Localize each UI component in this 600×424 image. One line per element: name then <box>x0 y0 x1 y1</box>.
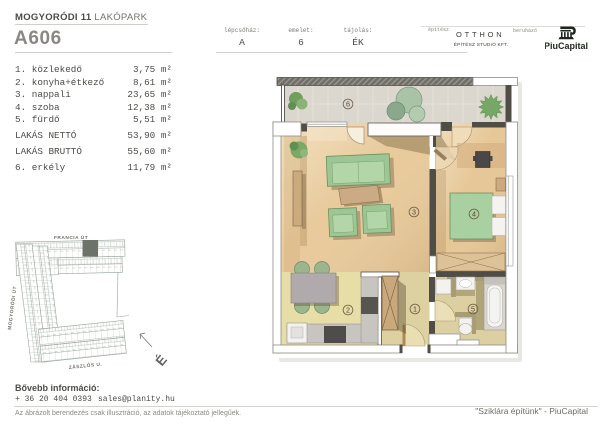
svg-text:4: 4 <box>472 210 476 219</box>
svg-text:1: 1 <box>413 305 417 314</box>
svg-text:3: 3 <box>412 208 416 217</box>
svg-text:FRANCIA ÚT: FRANCIA ÚT <box>54 234 88 241</box>
svg-text:6: 6 <box>346 100 350 109</box>
svg-text:MOGYORÓDI ÚT: MOGYORÓDI ÚT <box>5 285 18 330</box>
svg-text:É: É <box>153 352 170 369</box>
svg-text:5: 5 <box>471 305 475 314</box>
svg-text:2: 2 <box>346 306 350 315</box>
svg-text:ZÁSZLÓS U.: ZÁSZLÓS U. <box>68 360 102 371</box>
